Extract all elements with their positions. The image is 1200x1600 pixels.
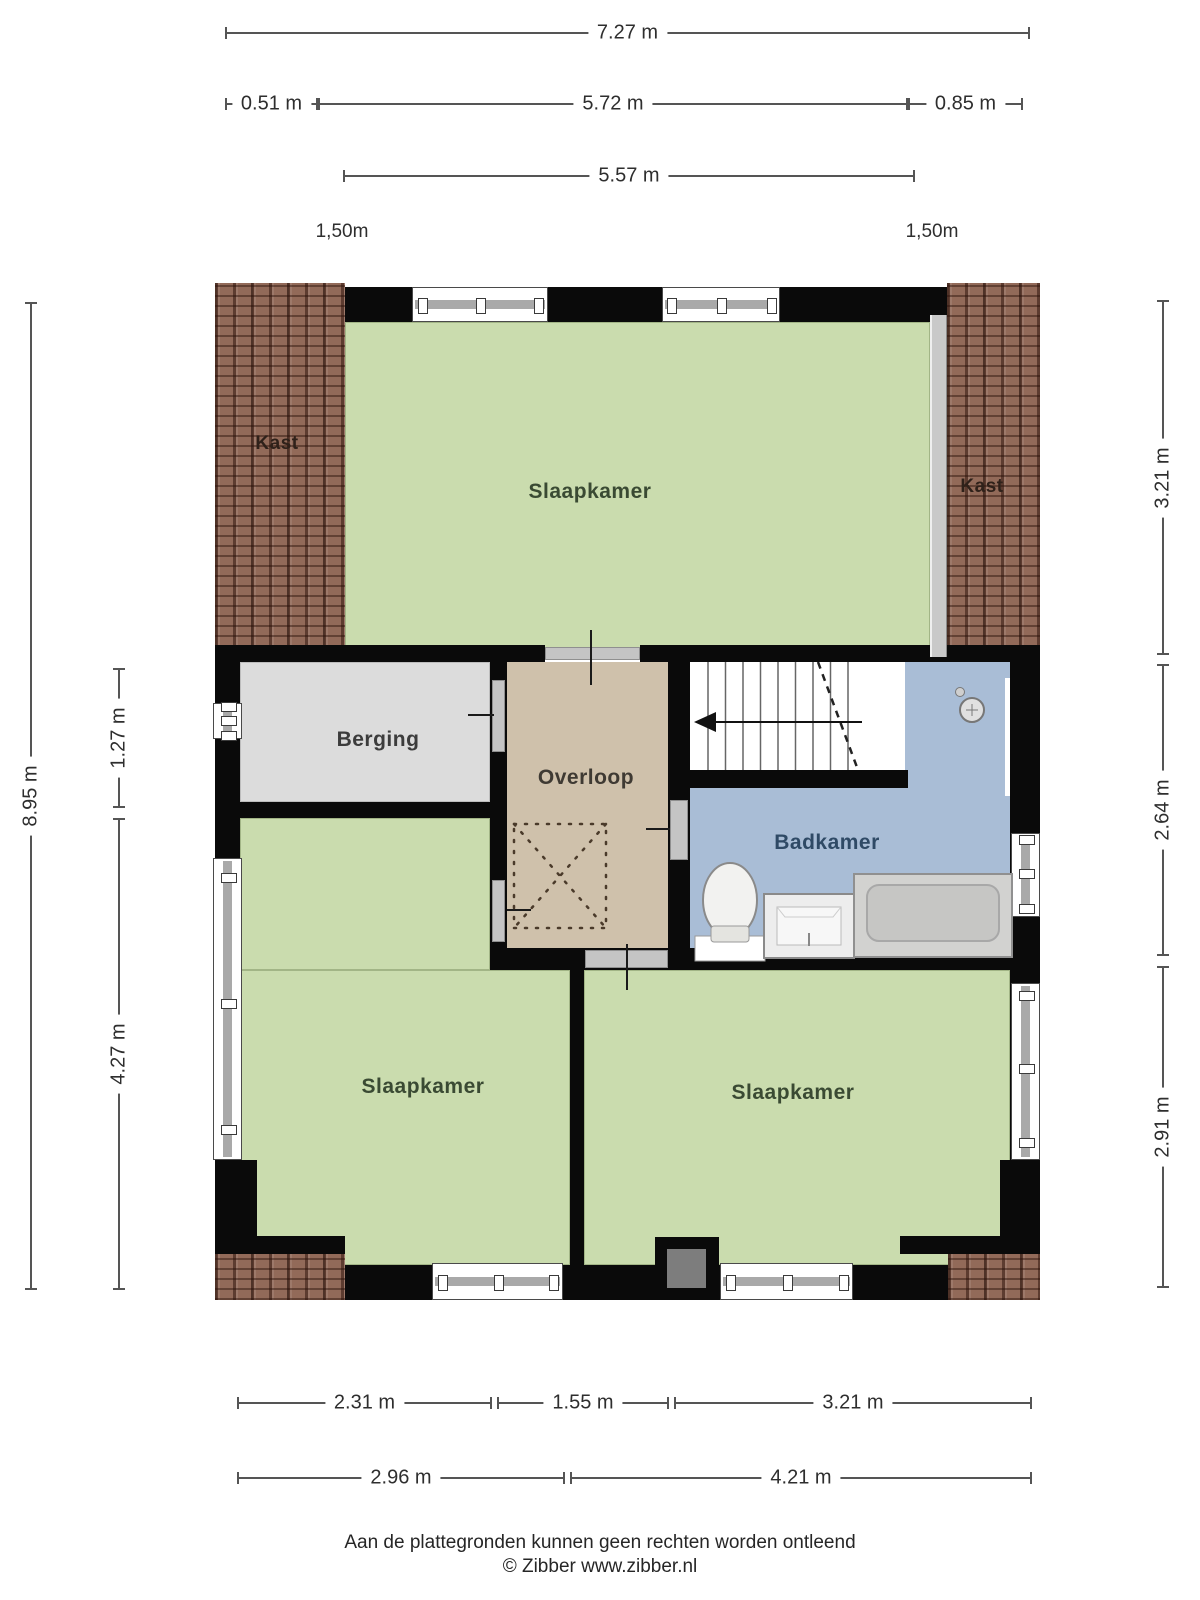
wall-bedroom-divider [570, 970, 584, 1288]
wall-bottom-left-strip [215, 1236, 345, 1254]
label-slaapkamer-left: Slaapkamer [362, 1075, 485, 1099]
dim-bottom-r2-right: 4.21 m [570, 1477, 1032, 1479]
roof-corner-bottom-right [948, 1250, 1040, 1300]
dim-right-lower: 2.91 m [1162, 966, 1164, 1288]
window-badkamer [1011, 833, 1040, 917]
dim-left-lower: 4.27 m [118, 818, 120, 1290]
window-top-1 [412, 287, 548, 322]
wall-overloop-stairs [668, 657, 690, 770]
bathtub-icon [853, 873, 1013, 958]
roof-kast-right [947, 283, 1040, 657]
dim-knee-right: 1,50m [906, 221, 959, 243]
dim-left-total: 8.95 m [30, 302, 32, 1290]
label-slaapkamer-top: Slaapkamer [529, 480, 652, 504]
door-berging [492, 680, 505, 752]
room-slaapkamer-left-upper [240, 818, 490, 970]
dim-bottom-r1-right: 3.21 m [674, 1402, 1032, 1404]
dim-top-left-offset: 0.51 m [225, 103, 318, 105]
skylight-dashed-box-icon [510, 820, 610, 932]
footer-disclaimer: Aan de plattegronden kunnen geen rechten… [0, 1532, 1200, 1554]
dim-bottom-r1-mid: 1.55 m [497, 1402, 669, 1404]
dim-top-total: 7.27 m [225, 32, 1030, 34]
window-bottom-right [720, 1263, 853, 1300]
label-badkamer: Badkamer [774, 831, 880, 855]
label-overloop: Overloop [538, 766, 634, 790]
label-slaapkamer-right: Slaapkamer [732, 1081, 855, 1105]
door-tick-slaapkamer-top [590, 630, 592, 685]
window-berging [213, 703, 242, 739]
staircase-icon [690, 662, 905, 770]
sink-icon [763, 893, 855, 959]
footer-copyright: © Zibber www.zibber.nl [0, 1556, 1200, 1578]
wall-mid-right [640, 645, 1040, 662]
window-top-2 [662, 287, 780, 322]
wall-under-stairs [678, 770, 908, 788]
floorplan-page: 7.27 m 0.51 m 5.72 m 0.85 m 5.57 m 1,50m… [0, 0, 1200, 1600]
room-slaapkamer-right [584, 970, 1010, 1265]
door-slaapkamer-left [492, 880, 505, 942]
door-badkamer [670, 800, 688, 860]
dim-bottom-r1-left: 2.31 m [237, 1402, 492, 1404]
shower-head-icon [946, 684, 990, 728]
door-tick-berging [468, 714, 494, 716]
window-left-bedroom [213, 858, 242, 1160]
divider-slaapkamer-kast [930, 315, 947, 657]
dim-top-second: 5.57 m [343, 175, 915, 177]
dim-left-upper: 1.27 m [118, 668, 120, 808]
dim-top-inner: 5.72 m [318, 103, 908, 105]
wall-bottom-right-strip [900, 1236, 1040, 1254]
door-tick-badkamer [646, 828, 670, 830]
room-slaapkamer-left [240, 970, 570, 1265]
wall-right-corner-step [1000, 1160, 1040, 1240]
label-kast-right: Kast [960, 476, 1003, 498]
label-kast-left: Kast [255, 433, 298, 455]
dim-knee-left: 1,50m [316, 221, 369, 243]
dim-right-middle: 2.64 m [1162, 664, 1164, 956]
roof-kast-left [215, 283, 345, 657]
wall-left-corner-step [215, 1160, 257, 1240]
wall-berging-bottom [215, 802, 507, 818]
dim-right-upper: 3.21 m [1162, 300, 1164, 655]
roof-corner-bottom-left [215, 1250, 345, 1300]
dim-bottom-r2-left: 2.96 m [237, 1477, 565, 1479]
door-slaapkamer-top [545, 647, 640, 660]
dim-top-right-offset: 0.85 m [908, 103, 1023, 105]
label-berging: Berging [337, 728, 420, 752]
window-right-bedroom [1011, 983, 1040, 1160]
chimney [655, 1237, 719, 1300]
door-tick-slaapkamer-right [626, 944, 628, 990]
window-bottom-left [432, 1263, 563, 1300]
toilet-icon [694, 860, 766, 962]
